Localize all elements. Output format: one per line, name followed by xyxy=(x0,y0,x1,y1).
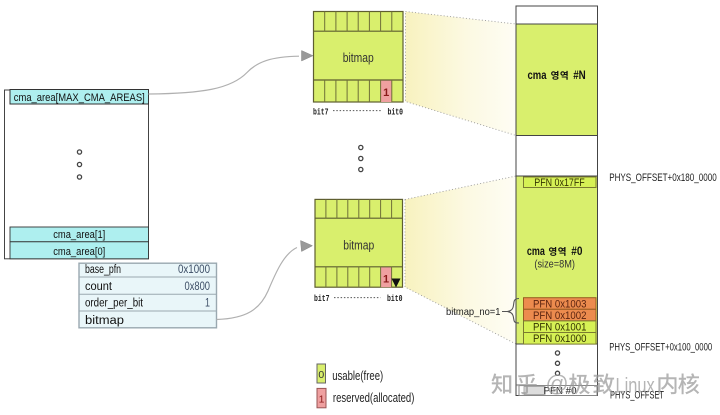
svg-text:bit0: bit0 xyxy=(388,106,404,117)
svg-text:reserved(allocated): reserved(allocated) xyxy=(333,391,415,405)
svg-text:@: @ xyxy=(545,371,568,397)
svg-text:cma: cma xyxy=(528,70,547,82)
svg-text:bitmap_no=1: bitmap_no=1 xyxy=(446,306,501,318)
svg-text:PFN 0x1000: PFN 0x1000 xyxy=(533,333,587,345)
svg-text:PHYS_OFFSET+0x100_0000: PHYS_OFFSET+0x100_0000 xyxy=(609,342,712,354)
svg-text:base_pfn: base_pfn xyxy=(85,264,121,276)
svg-text:#N: #N xyxy=(573,70,586,82)
svg-text:1: 1 xyxy=(383,87,389,99)
svg-text:usable(free): usable(free) xyxy=(332,369,383,383)
svg-text:(size=8M): (size=8M) xyxy=(534,259,575,271)
svg-text:bitmap: bitmap xyxy=(343,238,374,253)
svg-text:cma: cma xyxy=(527,246,545,258)
svg-text:1: 1 xyxy=(383,274,389,286)
svg-text:count: count xyxy=(85,281,113,293)
svg-text:0: 0 xyxy=(318,369,324,381)
svg-text:PFN 0x17FF: PFN 0x17FF xyxy=(534,177,585,189)
svg-text:bit7: bit7 xyxy=(314,293,330,304)
svg-text:PFN 0x1001: PFN 0x1001 xyxy=(533,322,587,334)
svg-text:Linux: Linux xyxy=(616,373,655,397)
svg-text:1: 1 xyxy=(319,393,325,405)
svg-text:bit7: bit7 xyxy=(313,106,329,117)
svg-text:bit0: bit0 xyxy=(387,293,403,304)
svg-text:order_per_bit: order_per_bit xyxy=(85,297,144,309)
svg-text:cma_area[1]: cma_area[1] xyxy=(53,229,105,241)
svg-text:0x800: 0x800 xyxy=(185,281,211,293)
svg-text:0x1000: 0x1000 xyxy=(178,264,210,276)
svg-text:1: 1 xyxy=(205,297,210,309)
svg-text:cma_area[MAX_CMA_AREAS]: cma_area[MAX_CMA_AREAS] xyxy=(14,92,145,104)
svg-text:cma_area[0]: cma_area[0] xyxy=(53,246,105,258)
svg-text:PHYS_OFFSET+0x180_0000: PHYS_OFFSET+0x180_0000 xyxy=(609,172,717,184)
svg-text:bitmap: bitmap xyxy=(85,315,124,327)
svg-text:#0: #0 xyxy=(571,246,582,258)
svg-text:bitmap: bitmap xyxy=(343,50,374,65)
svg-text:PFN 0x1003: PFN 0x1003 xyxy=(533,298,587,310)
svg-text:PFN 0x1002: PFN 0x1002 xyxy=(533,310,587,322)
